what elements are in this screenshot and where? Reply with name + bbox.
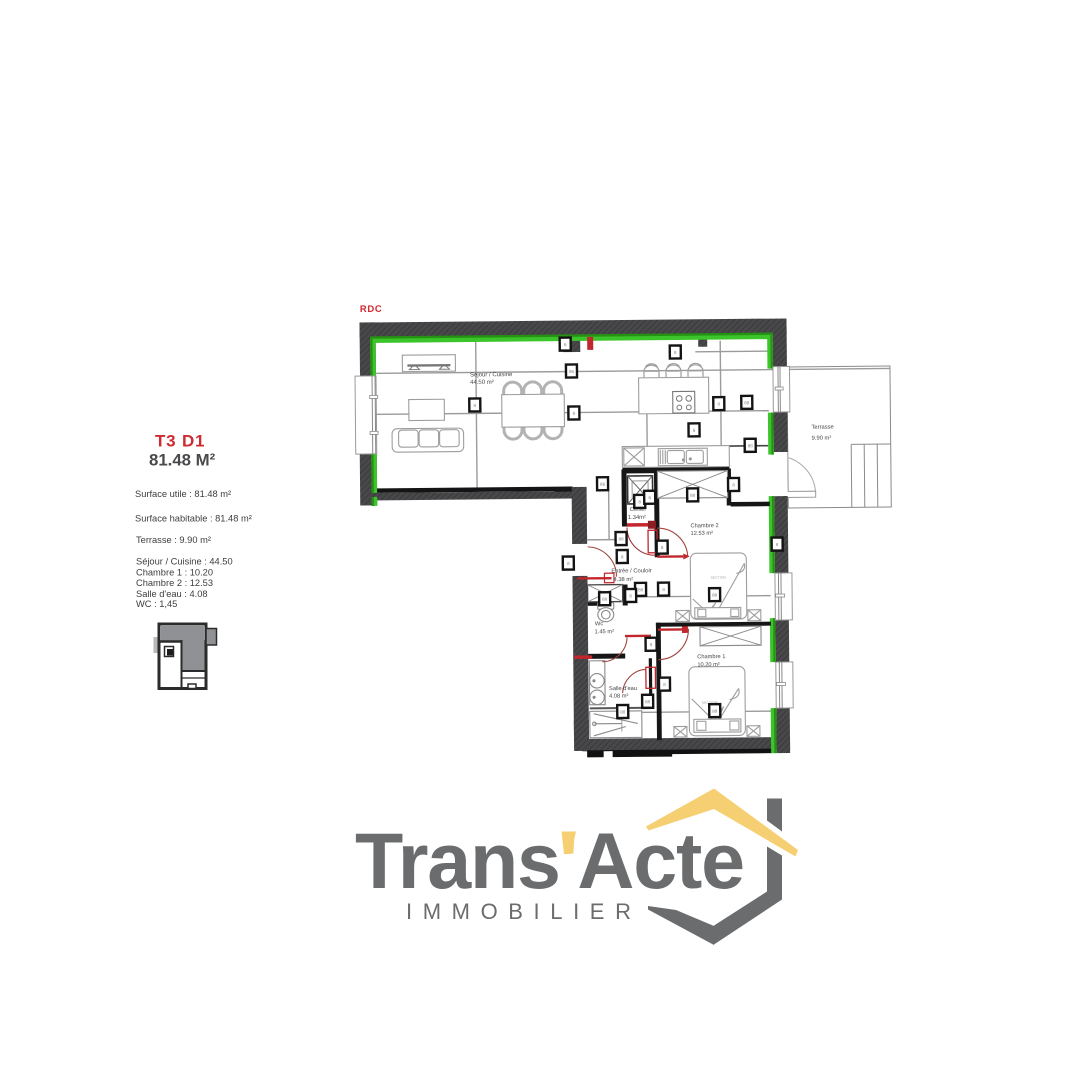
svg-text:Chambre 1: Chambre 1 [697, 654, 725, 660]
svg-text:88: 88 [638, 587, 644, 592]
svg-text:88: 88 [645, 699, 651, 704]
svg-text:88: 88 [690, 493, 696, 498]
svg-text:RDC: RDC [360, 304, 382, 315]
svg-text:88: 88 [712, 709, 718, 714]
svg-text:IMMOBILIER: IMMOBILIER [406, 899, 642, 924]
svg-text:Chambre 2 : 12.53: Chambre 2 : 12.53 [136, 578, 213, 588]
svg-text:Surface utile : 81.48 m²: Surface utile : 81.48 m² [135, 489, 231, 499]
svg-text:88: 88 [602, 597, 608, 602]
svg-text:Salle d'eau : 4.08: Salle d'eau : 4.08 [136, 589, 208, 599]
svg-text:88: 88 [744, 400, 750, 405]
svg-text:88: 88 [712, 593, 718, 598]
svg-text:Chambre 1 : 10.20: Chambre 1 : 10.20 [136, 568, 213, 578]
svg-text:86: 86 [569, 369, 575, 374]
svg-text:12.53 m²: 12.53 m² [691, 531, 714, 537]
svg-text:1.34m²: 1.34m² [628, 515, 646, 521]
svg-text:88: 88 [620, 710, 626, 715]
svg-text:Séjour / Cuisine: Séjour / Cuisine [470, 372, 513, 378]
svg-text:T3 D1: T3 D1 [155, 432, 205, 451]
svg-text:Terrasse : 9.90 m²: Terrasse : 9.90 m² [136, 535, 211, 545]
svg-text:4.38 m²: 4.38 m² [613, 577, 633, 583]
svg-text:10.20 m²: 10.20 m² [697, 662, 720, 668]
svg-text:86: 86 [600, 482, 606, 487]
svg-text:Surface habitable : 81.48 m²: Surface habitable : 81.48 m² [135, 514, 252, 524]
svg-text:Terrasse: Terrasse [812, 425, 834, 431]
svg-text:Wc: Wc [595, 621, 604, 627]
svg-text:9.90 m²: 9.90 m² [812, 436, 832, 442]
svg-text:4.08 m²: 4.08 m² [609, 693, 628, 699]
svg-text:88: 88 [748, 443, 754, 448]
svg-text:Chambre 2: Chambre 2 [690, 523, 718, 529]
svg-text:WC : 1,45: WC : 1,45 [136, 599, 177, 609]
svg-text:Séjour / Cuisine : 44.50: Séjour / Cuisine : 44.50 [136, 557, 233, 567]
svg-text:Salle d'eau: Salle d'eau [609, 686, 637, 692]
svg-text:1.45 m²: 1.45 m² [594, 629, 614, 635]
svg-text:88: 88 [619, 537, 625, 542]
svg-text:Entrée / Couloir: Entrée / Couloir [611, 568, 651, 574]
svg-text:SECTION: SECTION [710, 576, 726, 580]
svg-text:Trans'Acte: Trans'Acte [355, 816, 744, 905]
svg-text:81.48 M²: 81.48 M² [149, 451, 216, 470]
svg-text:44.50 m²: 44.50 m² [470, 380, 494, 386]
